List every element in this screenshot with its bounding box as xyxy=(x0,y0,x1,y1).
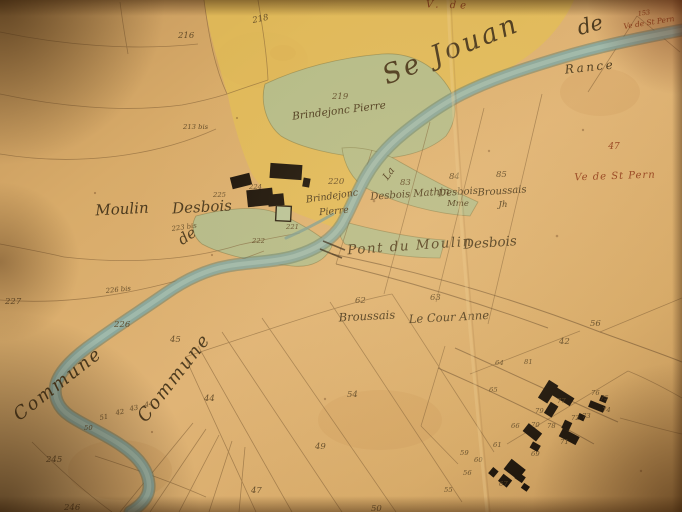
edge-shadow-left-mid xyxy=(0,0,682,512)
cadastral-map-canvas: Se Jouan de Commune Commune de La Rance … xyxy=(0,0,682,512)
map-svg: Se Jouan de Commune Commune de La Rance … xyxy=(0,0,682,512)
